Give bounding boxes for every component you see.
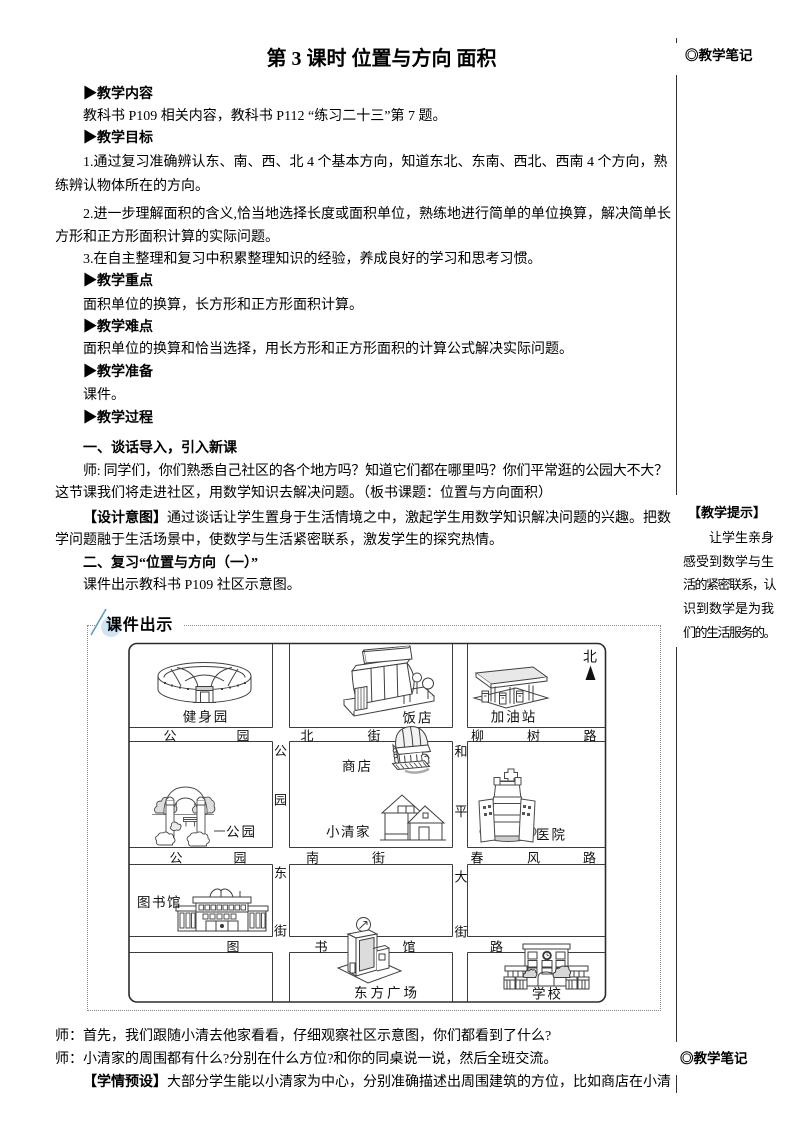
svg-text:健身园: 健身园 xyxy=(183,710,230,725)
svg-text:路: 路 xyxy=(583,729,596,744)
svg-text:园: 园 xyxy=(274,793,287,808)
svg-text:书: 书 xyxy=(314,940,327,955)
svg-text:街: 街 xyxy=(454,925,467,940)
svg-text:南: 南 xyxy=(306,851,319,866)
svg-text:公: 公 xyxy=(274,744,287,759)
svg-text:街: 街 xyxy=(367,729,380,744)
svg-text:公: 公 xyxy=(163,729,176,744)
svg-text:街: 街 xyxy=(372,851,385,866)
svg-text:平: 平 xyxy=(454,804,467,819)
svg-text:小清家: 小清家 xyxy=(326,824,371,840)
svg-text:图: 图 xyxy=(226,940,239,955)
svg-text:东方广场: 东方广场 xyxy=(354,986,420,1001)
svg-text:和: 和 xyxy=(454,744,467,759)
svg-text:医院: 医院 xyxy=(536,828,567,843)
svg-text:街: 街 xyxy=(274,924,287,939)
svg-text:饭店: 饭店 xyxy=(403,711,434,726)
svg-text:图书馆: 图书馆 xyxy=(137,895,182,910)
svg-text:风: 风 xyxy=(527,851,540,866)
svg-text:园: 园 xyxy=(236,729,249,744)
svg-text:学校: 学校 xyxy=(532,986,563,1002)
svg-text:公园: 公园 xyxy=(226,825,257,840)
svg-text:商店: 商店 xyxy=(342,759,373,774)
svg-text:东: 东 xyxy=(274,866,287,881)
svg-text:柳: 柳 xyxy=(471,729,484,744)
svg-text:公: 公 xyxy=(169,851,182,866)
svg-text:路: 路 xyxy=(583,851,596,866)
svg-text:路: 路 xyxy=(490,940,503,955)
svg-text:大: 大 xyxy=(454,870,467,885)
svg-text:北: 北 xyxy=(300,729,313,744)
svg-text:树: 树 xyxy=(527,729,540,744)
svg-text:加油站: 加油站 xyxy=(491,710,538,725)
svg-text:北: 北 xyxy=(583,650,597,666)
svg-text:馆: 馆 xyxy=(402,940,415,955)
svg-text:春: 春 xyxy=(470,851,483,866)
svg-text:园: 园 xyxy=(233,851,246,866)
